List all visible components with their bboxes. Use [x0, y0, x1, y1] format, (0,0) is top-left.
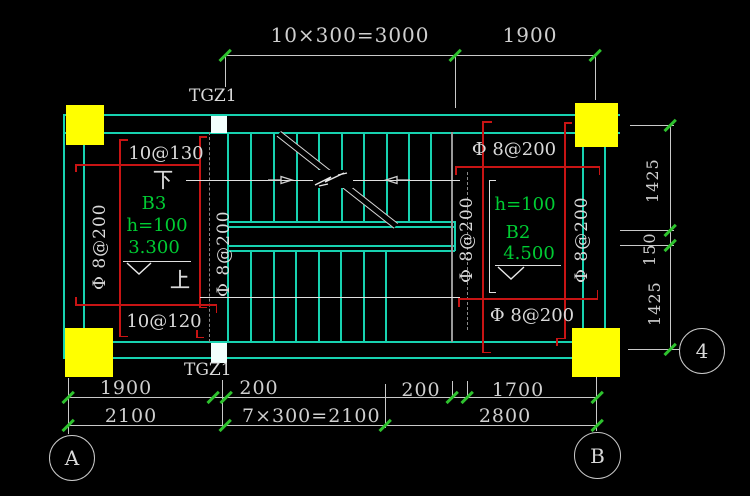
rebar-hook [216, 304, 218, 313]
dim-bottom-1700: 1700 [485, 379, 551, 401]
rebar-hook [599, 166, 601, 175]
rebar-hook [597, 290, 599, 299]
column-tgz1-top [211, 116, 227, 133]
slab-name-b3: B3 [136, 193, 172, 214]
column-yellow-bottom-right [572, 328, 620, 377]
rebar-hook [196, 337, 204, 339]
grid-bubble-b-label: B [590, 444, 605, 468]
rebar-hook [556, 338, 558, 346]
break-zigzag-icon [314, 171, 352, 189]
rebar-label-top-right: Φ 8@200 [468, 139, 560, 160]
extension-line [455, 57, 456, 108]
dim-line [670, 125, 671, 349]
tgz1-label-bottom: TGZ1 [184, 360, 232, 380]
text-bracket [489, 292, 496, 293]
dim-bottom-1900: 1900 [95, 377, 157, 399]
rebar-line [455, 166, 600, 168]
walk-arrow-left-icon [384, 175, 410, 185]
wall-line [63, 357, 620, 359]
level-value-left: 3.300 [121, 237, 187, 258]
column-yellow-top-right [575, 103, 618, 147]
dim-right-lower: 1425 [645, 281, 664, 326]
dim-bottom-2100: 2100 [99, 405, 163, 427]
rebar-hook [564, 122, 572, 124]
grid-bubble-a-label: A [65, 446, 79, 470]
dim-top-run: 10×300=3000 [270, 23, 430, 47]
landing-edge [454, 221, 456, 251]
stirrup-label-right-inner: Φ 8@200 [457, 196, 477, 283]
slab-thickness-left: h=100 [124, 215, 190, 236]
up-direction-glyph [169, 268, 191, 290]
rebar-hook [482, 352, 491, 354]
extension-line [595, 57, 596, 100]
dim-bottom-run: 7×300=2100 [242, 405, 372, 427]
landing-edge [227, 221, 455, 223]
slab-name-b2: B2 [500, 222, 536, 243]
level-value-right: 4.500 [496, 243, 562, 264]
rebar-hook [458, 298, 460, 307]
text-bracket [489, 180, 490, 293]
wall-line [63, 114, 65, 359]
grid-bubble-a: A [49, 435, 95, 481]
rebar-label-bottom-left: 10@120 [126, 311, 202, 332]
dim-right-mid: 150 [640, 232, 659, 266]
wall-line [63, 341, 620, 343]
grid-bubble-b: B [574, 432, 621, 479]
wall-line [63, 114, 620, 116]
dim-bottom-200-right: 200 [399, 379, 443, 401]
rebar-hook [482, 121, 492, 123]
rebar-hook [75, 297, 77, 305]
extension-line [222, 380, 223, 428]
stirrup-label-left-inner: Φ 8@200 [214, 210, 234, 297]
stair-tread [363, 133, 365, 221]
tgz1-label-top: TGZ1 [189, 86, 237, 106]
grid-bubble-4-label: 4 [696, 339, 709, 363]
dim-bottom-200-left: 200 [236, 377, 282, 399]
slab-thickness-right: h=100 [492, 194, 558, 215]
text-bracket [489, 180, 496, 181]
rebar-hook [455, 166, 457, 175]
rebar-hook [199, 307, 207, 309]
stair-plan-drawing: 10×300=3000 1900 1425 150 1425 1900 200 … [0, 0, 750, 496]
landing-edge [227, 245, 455, 247]
column-yellow-bottom-left [65, 328, 113, 377]
walk-arrow-right-icon [268, 175, 294, 185]
rebar-line [458, 298, 598, 300]
rebar-label-bottom-right: Φ 8@200 [484, 305, 580, 326]
grid-bubble-4: 4 [679, 328, 725, 374]
rebar-label-top-left: 10@130 [128, 143, 204, 164]
stirrup-label-left-outer: Φ 8@200 [90, 203, 110, 290]
extension-line [620, 230, 674, 231]
extension-line [225, 57, 226, 87]
rebar-line [75, 304, 217, 306]
dim-line [225, 55, 595, 56]
dim-right-upper: 1425 [643, 158, 662, 203]
reference-line [451, 132, 453, 342]
rebar-hook [119, 139, 128, 141]
level-triangle-icon [497, 266, 525, 281]
reference-line [209, 132, 210, 342]
rebar-hook [75, 164, 77, 172]
stirrup-label-right-outer: Φ 8@200 [572, 196, 592, 283]
rebar-hook [119, 336, 128, 338]
wall-line [604, 132, 606, 342]
column-yellow-top-left [66, 105, 104, 145]
level-triangle-icon [126, 262, 152, 276]
walking-line-lower [200, 297, 460, 298]
down-direction-glyph [152, 169, 174, 191]
dim-top-right: 1900 [480, 23, 580, 47]
stair-tread [430, 133, 432, 221]
stair-tread [250, 133, 252, 221]
rebar-hook [199, 136, 207, 138]
landing-edge [227, 226, 455, 228]
dim-bottom-2800: 2800 [473, 405, 537, 427]
rebar-line [75, 164, 201, 166]
